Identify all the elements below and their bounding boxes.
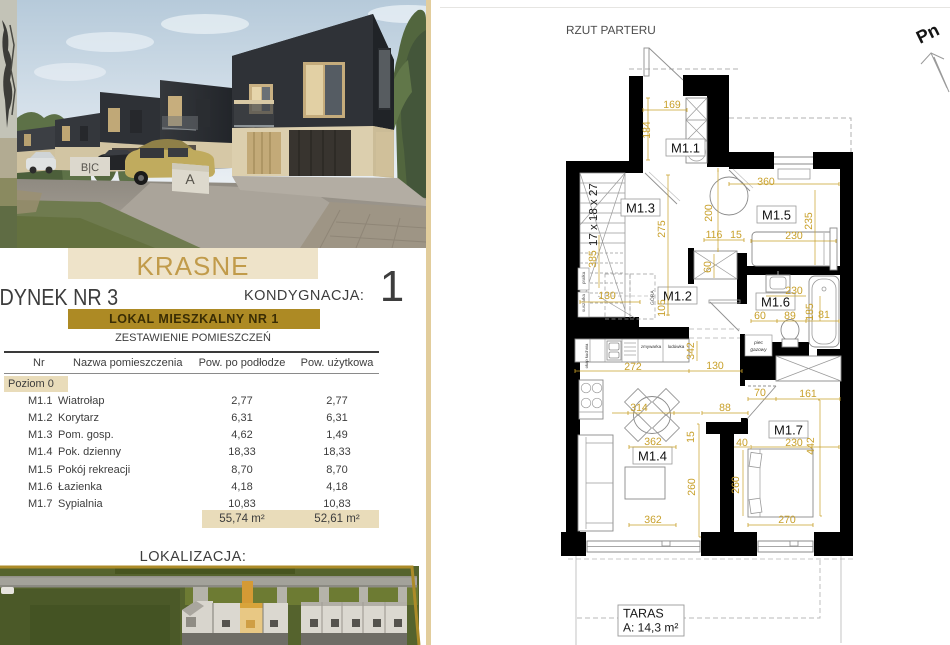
svg-text:270: 270 (778, 514, 796, 526)
svg-text:185: 185 (804, 303, 816, 321)
svg-text:lodówka: lodówka (668, 344, 685, 349)
svg-text:zmywarka: zmywarka (641, 344, 662, 349)
svg-text:442: 442 (805, 437, 817, 455)
svg-text:A: 14,3 m²: A: 14,3 m² (623, 621, 678, 635)
svg-text:okap kuchnia: okap kuchnia (584, 343, 589, 368)
svg-text:pralka: pralka (581, 271, 586, 284)
svg-text:piec: piec (753, 340, 763, 346)
svg-text:260: 260 (686, 478, 698, 496)
svg-text:Pn: Pn (913, 20, 942, 48)
svg-text:M1.1: M1.1 (671, 141, 700, 156)
svg-text:314: 314 (630, 402, 648, 414)
svg-text:M1.7: M1.7 (774, 423, 803, 438)
svg-text:362: 362 (644, 514, 662, 526)
svg-text:230: 230 (785, 230, 803, 242)
svg-text:15: 15 (685, 431, 697, 443)
svg-text:88: 88 (719, 402, 731, 414)
svg-text:169: 169 (663, 99, 681, 111)
svg-text:gazowy: gazowy (750, 348, 767, 353)
svg-text:81: 81 (818, 309, 830, 321)
svg-text:105: 105 (656, 299, 668, 317)
svg-text:17 x 18 x 27: 17 x 18 x 27 (588, 183, 600, 246)
svg-text:M1.3: M1.3 (626, 201, 655, 216)
svg-text:suszarka: suszarka (581, 293, 586, 312)
svg-text:A: A (185, 171, 195, 187)
svg-text:130: 130 (598, 290, 616, 302)
svg-text:161: 161 (799, 388, 817, 400)
svg-text:275: 275 (656, 220, 668, 238)
svg-text:360: 360 (757, 176, 775, 188)
svg-text:70: 70 (754, 387, 766, 399)
svg-text:TARAS: TARAS (623, 607, 664, 621)
svg-text:184: 184 (641, 121, 653, 139)
svg-text:130: 130 (706, 360, 724, 372)
svg-text:230: 230 (785, 437, 803, 449)
svg-text:116: 116 (706, 229, 723, 241)
svg-text:362: 362 (644, 436, 662, 448)
svg-text:89: 89 (784, 310, 796, 322)
svg-text:60: 60 (702, 261, 714, 273)
svg-text:260: 260 (730, 476, 742, 494)
svg-text:342: 342 (685, 342, 697, 360)
svg-text:GÓRA: GÓRA (649, 290, 656, 305)
svg-text:M1.5: M1.5 (762, 208, 791, 223)
svg-text:235: 235 (803, 212, 815, 230)
svg-text:272: 272 (624, 361, 642, 373)
svg-text:15: 15 (730, 229, 742, 241)
svg-text:60: 60 (754, 310, 766, 322)
svg-text:B|C: B|C (81, 162, 99, 174)
svg-text:M1.4: M1.4 (638, 449, 667, 464)
svg-text:RZUT PARTERU: RZUT PARTERU (566, 23, 656, 37)
svg-text:230: 230 (785, 285, 803, 297)
svg-text:385: 385 (587, 250, 599, 268)
svg-text:200: 200 (703, 204, 715, 222)
svg-text:40: 40 (736, 437, 748, 449)
